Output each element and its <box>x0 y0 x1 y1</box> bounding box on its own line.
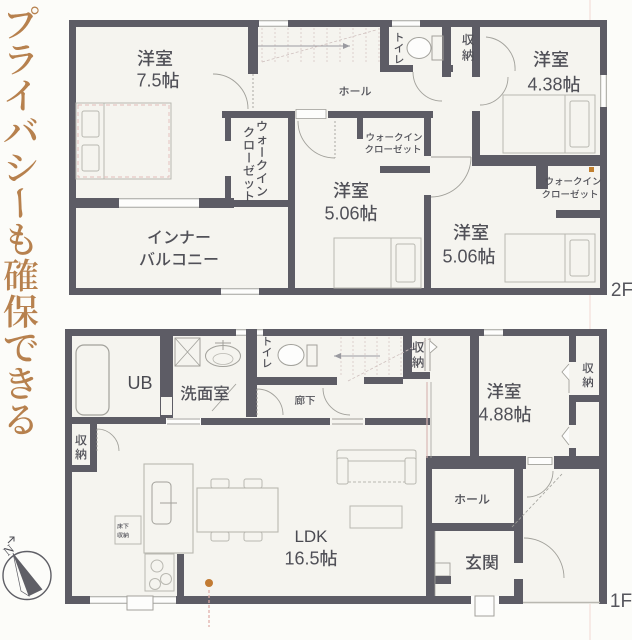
svg-text:UB: UB <box>127 373 152 393</box>
svg-text:5.06: 5.06 <box>325 203 360 223</box>
svg-text:16.5: 16.5 <box>285 548 320 568</box>
svg-text:4.38: 4.38 <box>528 74 563 94</box>
svg-text:7.5: 7.5 <box>137 70 162 90</box>
svg-text:2F: 2F <box>611 280 632 301</box>
svg-text:1F: 1F <box>610 591 632 612</box>
svg-text:4.88: 4.88 <box>479 404 514 424</box>
svg-text:5.06: 5.06 <box>443 246 478 266</box>
svg-text:LDK: LDK <box>294 527 328 546</box>
